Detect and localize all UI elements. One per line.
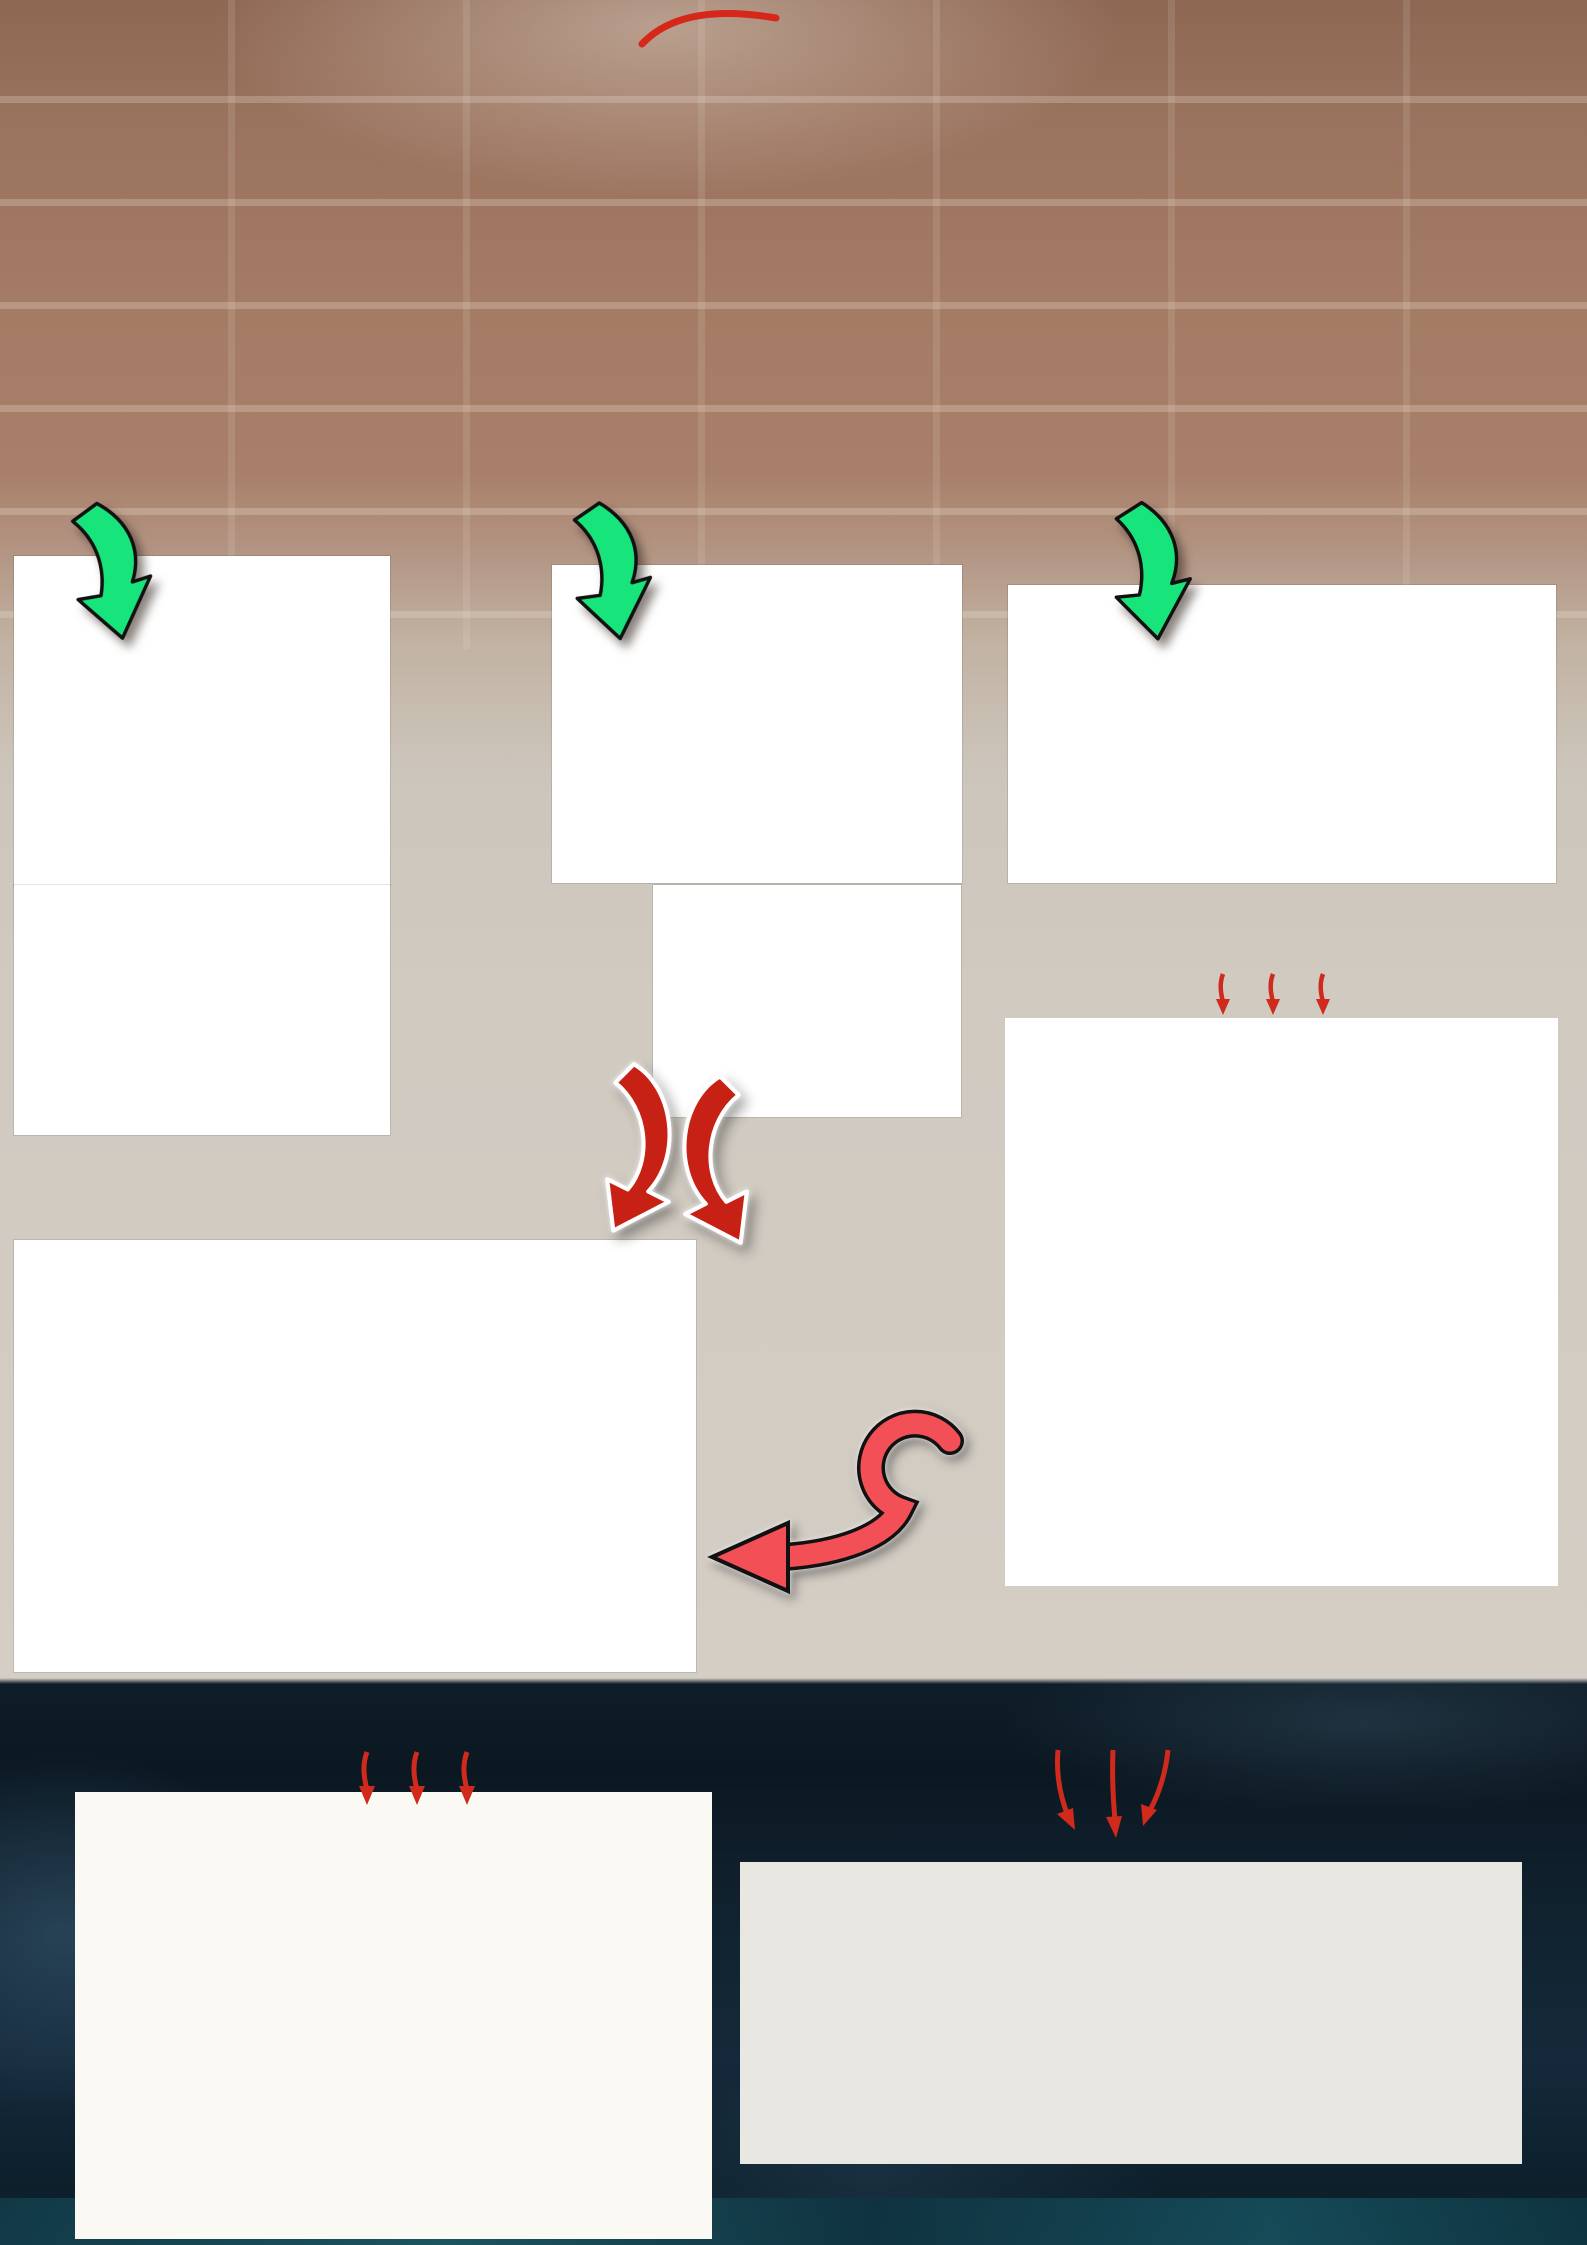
poster-root (0, 0, 1587, 2245)
kesimpulan-arrows-icon (342, 1750, 492, 1808)
abstract-box (1005, 1018, 1558, 1586)
control-ladder-svg (14, 1240, 696, 1672)
diagram-kontrol-arrow-icon (688, 1405, 983, 1613)
kesimpulan-box (75, 1792, 712, 2239)
green-arrow-icon (549, 496, 672, 650)
saran-arrows-icon (1028, 1748, 1193, 1846)
logo-swoosh-icon (636, 6, 786, 50)
power-diagram-svg (1008, 585, 1556, 883)
power-diagram-panel (1008, 585, 1556, 883)
cycle-arrows-icon (552, 1058, 802, 1248)
brick-texture (0, 0, 1587, 650)
abstrak-arrows-icon (1198, 972, 1348, 1018)
green-arrow-icon (47, 494, 175, 652)
render-illustration (14, 885, 390, 1135)
saran-box (740, 1862, 1522, 2164)
system-planning-render-image (14, 885, 390, 1135)
control-diagram-panel (14, 1240, 696, 1672)
green-arrow-icon (1092, 498, 1210, 648)
